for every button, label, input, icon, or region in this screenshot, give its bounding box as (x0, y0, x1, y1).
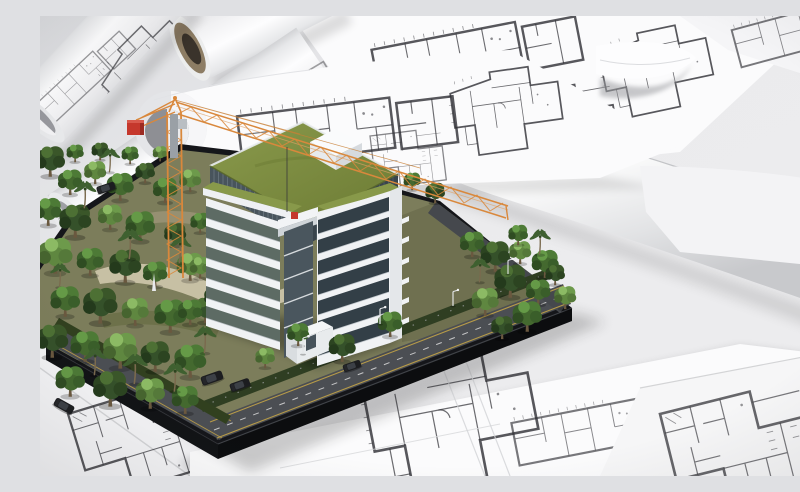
vignette-overlay (40, 16, 800, 476)
scene-architectural-model (40, 16, 800, 476)
architectural-model-photo (40, 16, 800, 476)
